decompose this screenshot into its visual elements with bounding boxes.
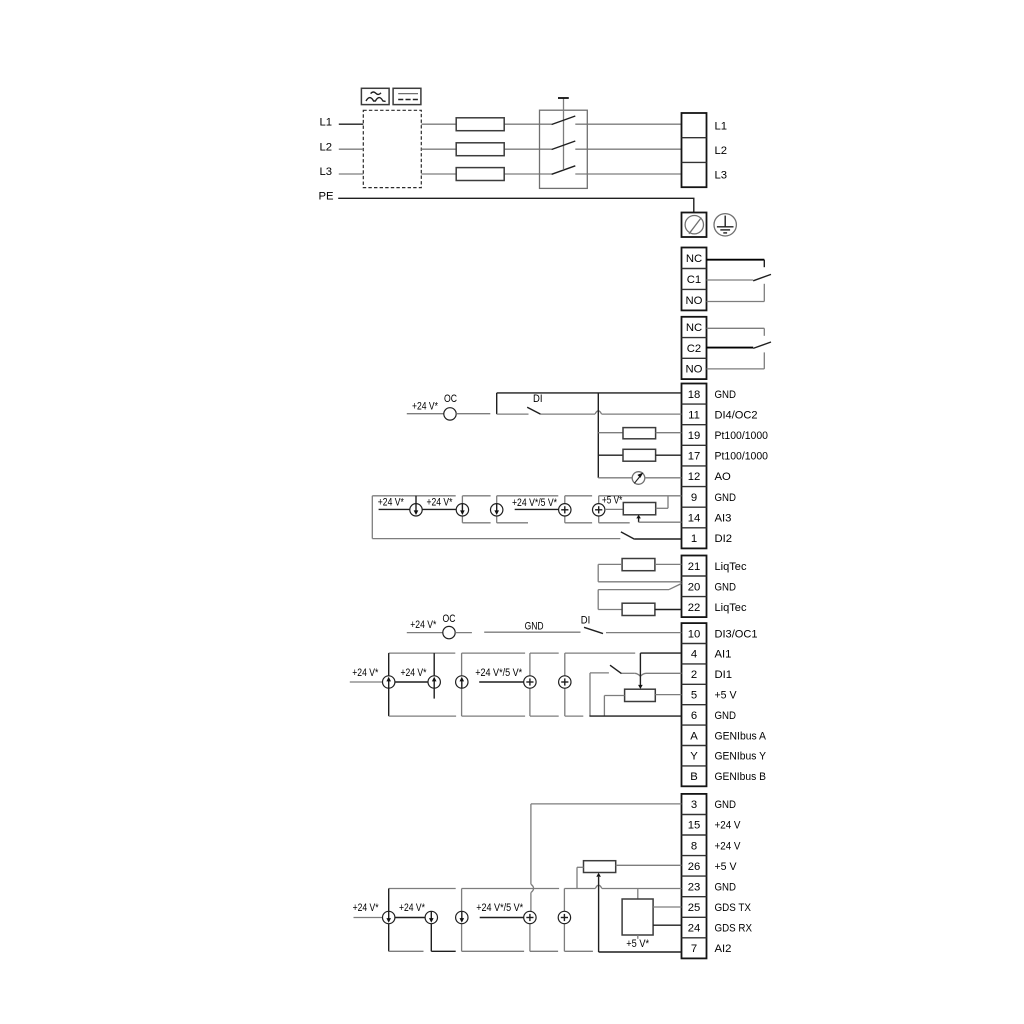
svg-text:AI2: AI2	[715, 943, 732, 955]
svg-text:DI2: DI2	[715, 533, 733, 545]
svg-text:2: 2	[691, 669, 697, 681]
svg-text:Y: Y	[690, 751, 698, 763]
svg-text:+24 V*: +24 V*	[352, 667, 378, 679]
svg-text:+24 V*: +24 V*	[378, 497, 404, 509]
svg-text:B: B	[690, 771, 698, 783]
svg-text:GENIbus B: GENIbus B	[715, 771, 767, 783]
svg-text:OC: OC	[443, 613, 456, 625]
svg-text:L2: L2	[320, 142, 333, 154]
svg-text:L3: L3	[320, 166, 333, 178]
svg-text:23: 23	[688, 881, 701, 893]
svg-text:26: 26	[688, 861, 701, 873]
svg-text:L3: L3	[715, 170, 728, 182]
svg-text:+5 V: +5 V	[715, 861, 737, 873]
svg-text:+24 V*: +24 V*	[401, 667, 427, 679]
svg-text:+5 V: +5 V	[715, 690, 737, 702]
svg-text:GND: GND	[715, 389, 737, 401]
svg-text:GDS RX: GDS RX	[715, 923, 753, 935]
svg-text:DI: DI	[581, 615, 591, 627]
svg-text:18: 18	[688, 389, 701, 401]
svg-text:8: 8	[691, 840, 697, 852]
svg-text:9: 9	[691, 492, 697, 504]
svg-text:OC: OC	[444, 393, 457, 405]
svg-text:Pt100/1000: Pt100/1000	[715, 430, 769, 442]
svg-text:15: 15	[688, 820, 701, 832]
svg-text:+24 V*/5 V*: +24 V*/5 V*	[512, 497, 557, 509]
svg-text:NO: NO	[686, 364, 703, 376]
svg-text:+24 V: +24 V	[715, 820, 741, 832]
svg-text:PE: PE	[319, 191, 335, 203]
svg-text:24: 24	[688, 923, 701, 935]
svg-text:+5 V*: +5 V*	[602, 495, 623, 507]
svg-text:20: 20	[688, 581, 701, 593]
svg-text:DI: DI	[533, 393, 543, 405]
svg-text:C2: C2	[687, 343, 701, 355]
svg-text:17: 17	[688, 451, 701, 463]
svg-text:Pt100/1000: Pt100/1000	[715, 451, 769, 463]
svg-text:3: 3	[691, 799, 697, 811]
svg-text:GND: GND	[715, 710, 737, 722]
svg-text:L2: L2	[715, 145, 728, 157]
svg-text:LiqTec: LiqTec	[715, 561, 747, 573]
svg-text:AI3: AI3	[715, 513, 732, 525]
svg-text:7: 7	[691, 943, 697, 955]
svg-text:L1: L1	[715, 120, 728, 132]
svg-text:A: A	[690, 730, 698, 742]
svg-text:GND: GND	[525, 621, 544, 633]
svg-text:GND: GND	[715, 492, 737, 504]
svg-text:+24 V*: +24 V*	[427, 497, 453, 509]
svg-text:+24 V*/5 V*: +24 V*/5 V*	[475, 667, 522, 679]
svg-text:+24 V: +24 V	[715, 840, 741, 852]
svg-text:4: 4	[691, 649, 697, 661]
svg-text:NO: NO	[686, 295, 703, 307]
svg-text:DI4/OC2: DI4/OC2	[715, 409, 758, 421]
svg-text:DI3/OC1: DI3/OC1	[715, 628, 758, 640]
svg-text:+24 V*/5 V*: +24 V*/5 V*	[476, 902, 523, 914]
svg-text:5: 5	[691, 690, 697, 702]
svg-text:LiqTec: LiqTec	[715, 602, 747, 614]
svg-text:GND: GND	[715, 581, 737, 593]
svg-text:NC: NC	[686, 322, 702, 334]
svg-text:GND: GND	[715, 799, 737, 811]
svg-text:12: 12	[688, 471, 701, 483]
svg-text:GDS TX: GDS TX	[715, 902, 752, 914]
svg-text:+5 V*: +5 V*	[626, 938, 649, 950]
svg-text:NC: NC	[686, 253, 702, 265]
svg-text:1: 1	[691, 533, 697, 545]
svg-text:19: 19	[688, 430, 701, 442]
svg-text:GENIbus Y: GENIbus Y	[715, 751, 767, 763]
svg-text:+24 V*: +24 V*	[410, 619, 436, 631]
svg-text:6: 6	[691, 710, 697, 722]
svg-text:+24 V*: +24 V*	[412, 401, 438, 413]
svg-text:21: 21	[688, 561, 701, 573]
svg-text:L1: L1	[320, 117, 333, 129]
svg-text:+24 V*: +24 V*	[353, 902, 379, 914]
svg-text:11: 11	[688, 409, 700, 421]
svg-text:+24 V*: +24 V*	[399, 902, 425, 914]
svg-text:14: 14	[688, 513, 701, 525]
svg-text:GENIbus A: GENIbus A	[715, 730, 767, 742]
svg-text:AO: AO	[715, 471, 732, 483]
svg-text:GND: GND	[715, 881, 737, 893]
svg-text:10: 10	[688, 628, 701, 640]
svg-text:22: 22	[688, 602, 701, 614]
svg-text:DI1: DI1	[715, 669, 733, 681]
svg-text:C1: C1	[687, 274, 701, 286]
svg-text:25: 25	[688, 902, 701, 914]
svg-text:AI1: AI1	[715, 649, 732, 661]
